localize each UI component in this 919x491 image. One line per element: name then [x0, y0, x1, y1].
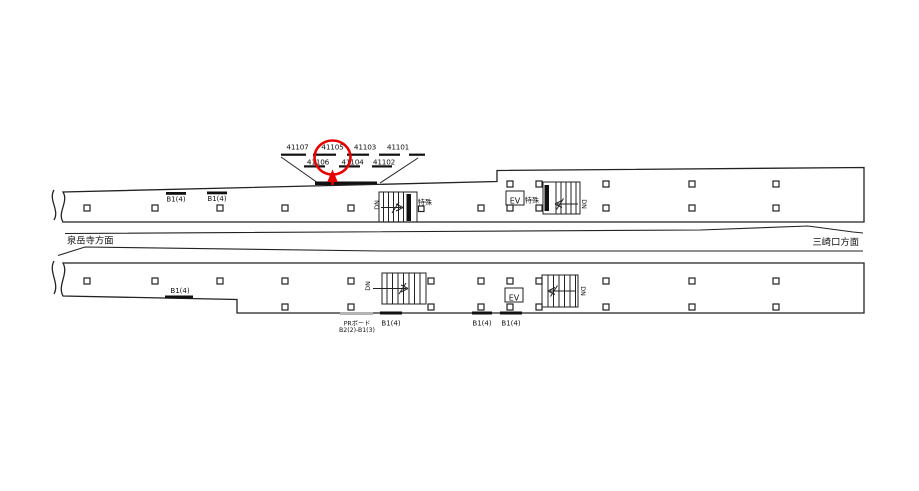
- sign-bar: [207, 192, 227, 195]
- pillar-marker: [689, 304, 695, 310]
- break-mark: [52, 261, 55, 294]
- pillar-marker: [152, 278, 158, 284]
- pillar-marker: [507, 181, 513, 187]
- sign-label: B1(4): [166, 196, 185, 204]
- pillar-marker: [507, 278, 513, 284]
- pillar-marker: [282, 304, 288, 310]
- pillar-marker: [282, 205, 288, 211]
- pillar-marker: [536, 181, 542, 187]
- sign-tick: [313, 154, 336, 156]
- sign-number: 41104: [341, 157, 364, 166]
- sign-bar: [166, 192, 186, 195]
- pillar-marker: [603, 278, 609, 284]
- sign-bar: [380, 312, 402, 315]
- sign-number-highlighted: 41105: [321, 142, 343, 151]
- pillar-marker: [478, 205, 484, 211]
- sign-label: B1(4): [170, 287, 189, 295]
- pillar-marker: [773, 304, 779, 310]
- tracks: 泉岳寺方面 三崎口方面: [58, 226, 863, 256]
- break-mark: [52, 190, 55, 220]
- pillar-marker: [348, 304, 354, 310]
- pillar-marker: [603, 304, 609, 310]
- sign-number: 41102: [373, 157, 395, 166]
- station-platform-diagram: 41107 41105 41103 41101 41106 41104 4110…: [0, 0, 919, 491]
- sign-number: 41106: [307, 157, 330, 166]
- top-platform: B1(4) B1(4) DN 特殊 EV: [52, 168, 864, 223]
- sign-label: B1(4): [381, 320, 400, 328]
- pillar-marker: [507, 304, 513, 310]
- bottom-platform: B1(4) DN EV: [52, 261, 864, 334]
- special-sign-bar: [545, 185, 550, 211]
- sign-tick: [379, 154, 400, 156]
- sign-number: 41103: [354, 142, 377, 151]
- pillar-marker: [217, 278, 223, 284]
- track-line-up: [65, 226, 863, 234]
- pillar-marker: [152, 205, 158, 211]
- pillar-marker: [84, 278, 90, 284]
- pillar-marker: [478, 278, 484, 284]
- pillar-marker: [428, 278, 434, 284]
- pr-board-sublabel: B2(2)-B1(3): [339, 327, 375, 334]
- diagram-canvas: 41107 41105 41103 41101 41106 41104 4110…: [0, 0, 919, 491]
- down-label: DN: [580, 199, 587, 209]
- sign-number: 41101: [387, 142, 409, 151]
- sign-label: B1(4): [207, 195, 226, 203]
- pillar-marker: [282, 278, 288, 284]
- pillar-marker: [689, 205, 695, 211]
- pillar-marker: [84, 205, 90, 211]
- pillar-marker: [689, 181, 695, 187]
- pillar-marker: [217, 205, 223, 211]
- pillar-marker: [348, 278, 354, 284]
- sign-bar: [500, 312, 522, 315]
- direction-label-left: 泉岳寺方面: [67, 235, 114, 247]
- pillar-marker: [536, 205, 542, 211]
- sign-tick: [372, 165, 392, 167]
- special-sign-bar: [407, 194, 412, 221]
- pillar-marker: [419, 206, 425, 212]
- pr-board-bar: [340, 312, 373, 315]
- sign-tick: [304, 165, 325, 167]
- pillar-marker: [536, 304, 542, 310]
- pillar-marker: [507, 205, 513, 211]
- down-label: DN: [365, 281, 372, 291]
- direction-label-right: 三崎口方面: [813, 236, 860, 248]
- pillar-marker: [428, 304, 434, 310]
- sign-label: B1(4): [501, 320, 520, 328]
- sign-tick: [409, 154, 425, 156]
- elevator-label: EV: [510, 197, 521, 206]
- sign-bar: [472, 312, 492, 315]
- elevator-label: EV: [509, 294, 520, 303]
- down-label: DN: [374, 200, 381, 210]
- sign-label: B1(4): [472, 320, 491, 328]
- sign-number: 41107: [286, 142, 309, 151]
- pillar-marker: [773, 205, 779, 211]
- special-label: 特殊: [418, 198, 432, 207]
- pillar-marker: [773, 278, 779, 284]
- sign-tick: [281, 154, 306, 156]
- special-label: 特殊: [525, 196, 539, 205]
- track-line-down: [58, 247, 863, 256]
- pillar-marker: [603, 181, 609, 187]
- pillar-marker: [773, 181, 779, 187]
- pillar-marker: [689, 278, 695, 284]
- pillar-marker: [348, 205, 354, 211]
- sign-bar: [165, 296, 193, 299]
- pillar-marker: [603, 205, 609, 211]
- pillar-marker: [536, 278, 542, 284]
- down-label: DN: [579, 286, 586, 296]
- bottom-edge-signs: PRボード B2(2)-B1(3) B1(4) B1(4) B1(4): [339, 312, 522, 335]
- pillar-marker: [478, 304, 484, 310]
- highlight-arrow-head: [327, 170, 338, 183]
